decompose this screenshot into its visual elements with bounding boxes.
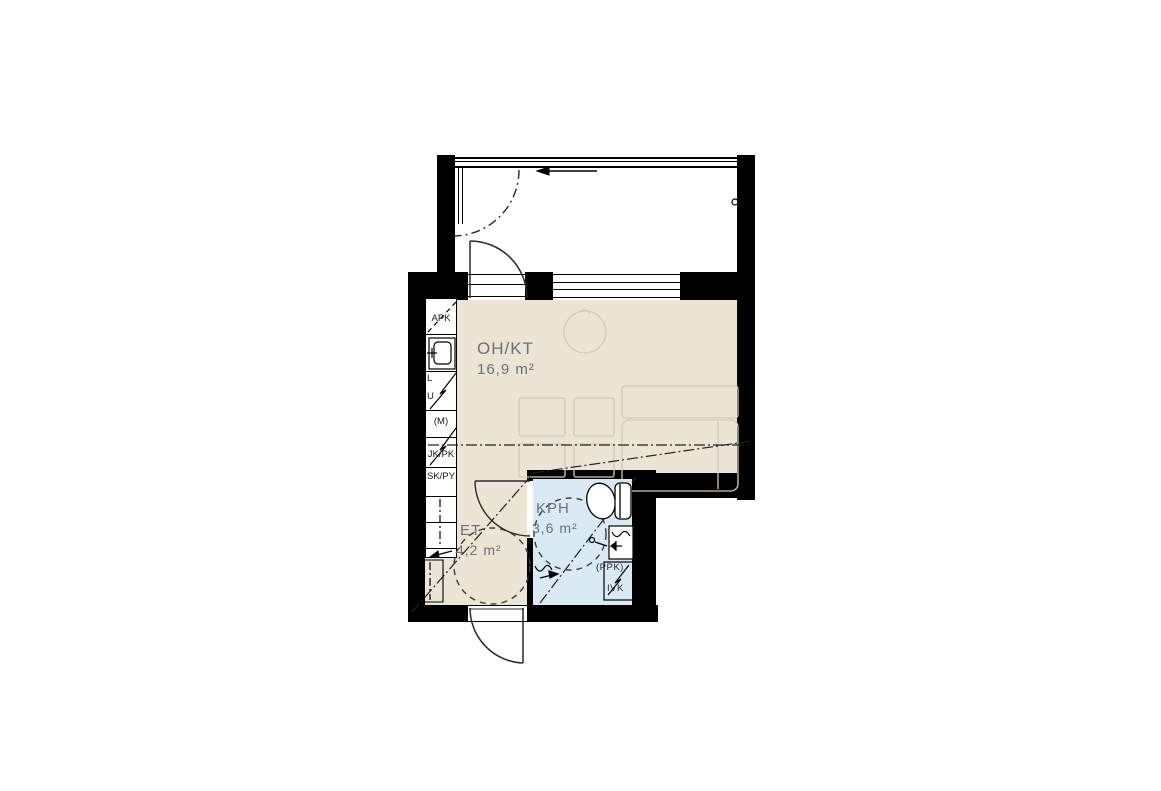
room-area: 3,6 m² [532,519,578,537]
balcony-door-window [468,274,525,297]
wall-bottom [408,605,658,622]
wall-bath-top [527,470,643,479]
living-room-window [553,274,680,298]
label-closet: SK/PY [425,471,457,482]
wall-right [737,155,755,500]
room-area: 16,9 m² [477,360,535,380]
entry-door-opening [468,606,527,621]
room-label-entry: ET 4,2 m² [460,521,502,559]
room-area: 4,2 m² [456,541,502,559]
kitchen-sink-box [425,334,457,372]
living-room-floor [425,300,738,473]
label-washer-reservation: (PPK) [596,562,624,573]
label-fridge: JK/PK [425,449,457,460]
room-name: KPH [536,499,578,519]
wall-sill-mid [525,272,553,300]
room-label-living: OH/KT 16,9 m² [477,338,535,380]
balcony-railing [452,157,737,159]
balcony-railing [452,161,737,162]
label-dishwasher: APK [425,313,457,324]
room-name: ET [460,521,502,541]
wall-bottom-right [643,473,755,498]
label-vent-unit: IVK [607,583,624,594]
wardrobe-box [425,522,457,549]
rail-box [425,548,457,558]
label-stove-u: U [427,391,434,402]
wall-sill-right [680,272,737,300]
label-microwave: (M) [425,416,457,427]
wardrobe-box [425,496,457,523]
wall-left [408,272,425,622]
direction-arrow-icon [537,167,597,175]
wall-balcony-left [437,155,455,275]
label-stove-l: L [427,373,432,384]
room-label-bathroom: KPH 3,6 m² [536,499,578,537]
floor-plan: OH/KT 16,9 m² ET 4,2 m² KPH 3,6 m² APK L… [0,0,1161,791]
balcony-railing [452,166,737,168]
room-name: OH/KT [477,338,535,360]
